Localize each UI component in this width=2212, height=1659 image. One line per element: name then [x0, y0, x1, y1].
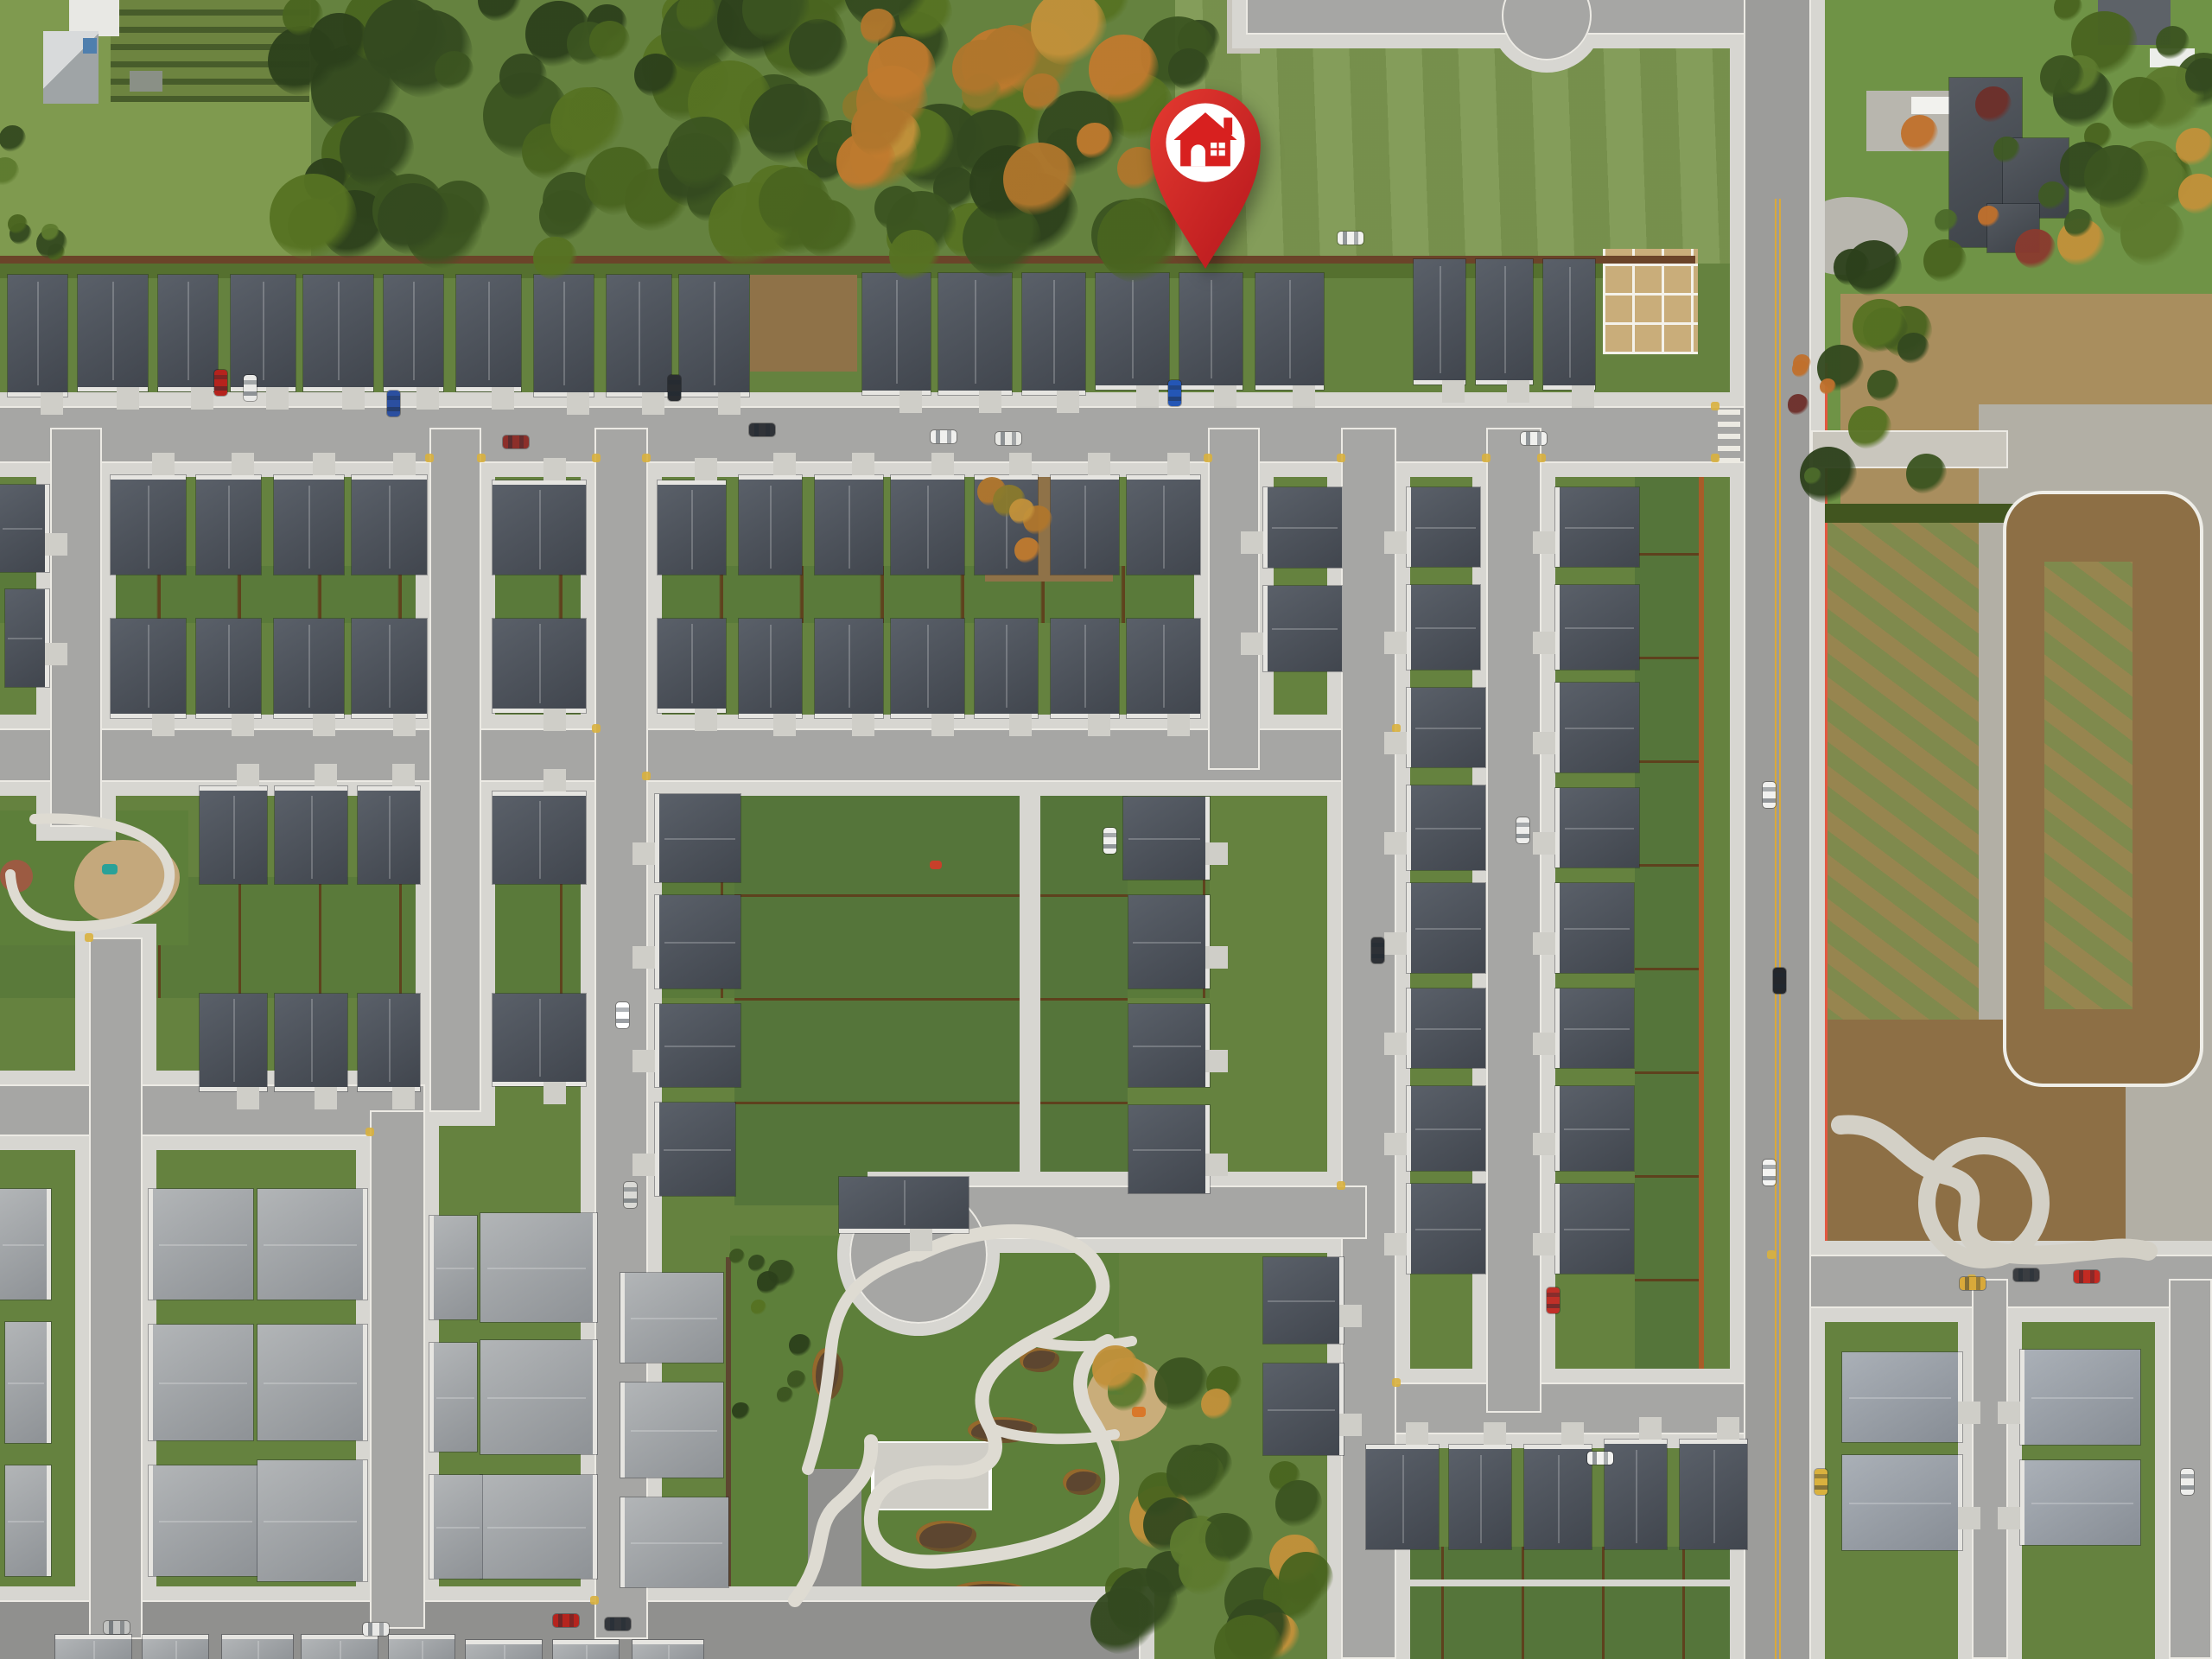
car	[363, 1623, 389, 1636]
car	[1960, 1277, 1986, 1290]
property-location-pin[interactable]	[1140, 74, 1271, 271]
car	[2013, 1268, 2039, 1281]
car	[1763, 1160, 1776, 1185]
car	[749, 423, 775, 436]
aerial-neighborhood-photo	[0, 0, 2212, 1659]
pin-graphic	[1140, 74, 1271, 271]
car	[387, 391, 400, 416]
house-door	[1191, 144, 1205, 166]
car	[668, 375, 681, 401]
car	[995, 432, 1021, 445]
car	[244, 375, 257, 401]
car	[1103, 828, 1116, 854]
car	[1516, 817, 1529, 843]
car	[1521, 432, 1547, 445]
car	[104, 1621, 130, 1634]
car	[553, 1614, 579, 1627]
car	[1773, 968, 1786, 994]
car	[2181, 1469, 2194, 1495]
car	[1547, 1287, 1560, 1313]
car	[503, 435, 529, 448]
car	[1371, 938, 1384, 963]
car	[1815, 1469, 1827, 1495]
car	[214, 370, 227, 396]
car	[1763, 782, 1776, 808]
car	[624, 1182, 637, 1208]
car	[616, 1002, 629, 1028]
vehicle-layer	[0, 0, 2212, 1659]
car	[2074, 1270, 2100, 1283]
car	[1587, 1452, 1613, 1465]
car	[1338, 232, 1363, 245]
car	[1168, 380, 1181, 406]
car	[931, 430, 957, 443]
car	[605, 1618, 631, 1630]
